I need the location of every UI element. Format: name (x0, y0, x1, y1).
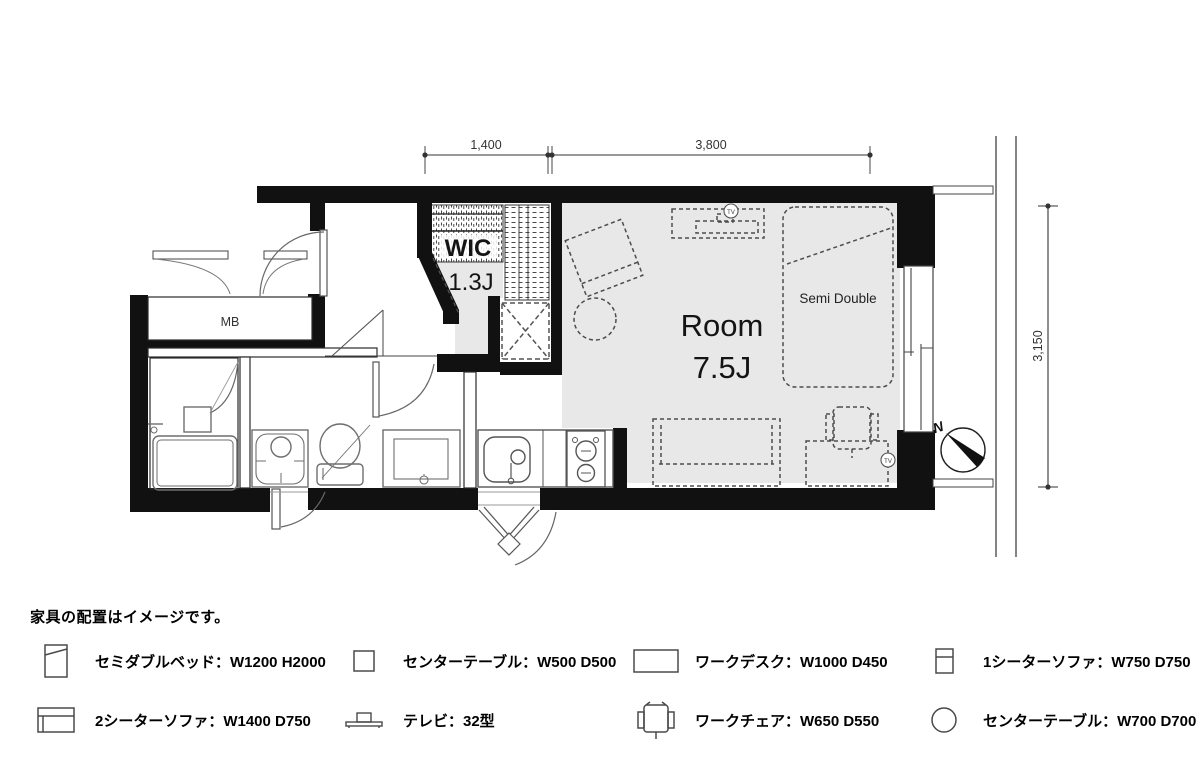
floor-plan-page: TV TV 1,400 3,800 3,150 N W (0, 0, 1200, 784)
entrance-door (260, 230, 327, 296)
wic-label: WIC (445, 235, 492, 262)
bathroom-outline (150, 358, 238, 489)
dim-entry-width: 1,400 (470, 138, 501, 152)
meter-box-doors (153, 251, 307, 294)
bathtub (148, 407, 237, 490)
work-desk-icon (630, 649, 682, 673)
legend-item-semi-double-bed: セミダブルベッド：W1200 H2000 (30, 644, 338, 678)
doors (210, 230, 556, 565)
two-seater-sofa-icon (30, 707, 82, 733)
bath-counter (184, 407, 211, 432)
room-size-label: 7.5J (693, 350, 752, 385)
legend-item-work-desk: ワークデスク：W1000 D450 (630, 649, 918, 673)
legend: セミダブルベッド：W1200 H2000 センターテーブル：W500 D500 … (30, 644, 1180, 740)
semi-double-bed-icon (30, 644, 82, 678)
bed-label: Semi Double (799, 291, 876, 306)
legend-item-work-chair: ワークチェア：W650 D550 (630, 700, 918, 740)
legend-item-center-table-small: センターテーブル：W500 D500 (338, 650, 630, 672)
pipe-space-box (502, 303, 549, 359)
tv-outlet-label: TV (727, 210, 735, 216)
room-label: Room (681, 308, 764, 343)
legend-label: センターテーブル：W700 D700 (983, 710, 1196, 731)
legend-item-tv: テレビ：32型 (338, 710, 630, 731)
bathroom-door (210, 362, 238, 413)
toilet (317, 424, 370, 485)
dim-room-depth: 3,150 (1031, 330, 1045, 361)
center-table-round-icon (918, 707, 970, 733)
tv-outlet-label: TV (884, 459, 892, 465)
legend-label: センターテーブル：W500 D500 (403, 651, 616, 672)
legend-item-center-table-round: センターテーブル：W700 D700 (918, 707, 1196, 733)
kitchen-counter (478, 430, 613, 487)
compass: N (931, 418, 985, 472)
legend-note: 家具の配置はイメージです。 (30, 606, 230, 627)
partitions (148, 297, 476, 489)
floor-plan-drawing: TV TV 1,400 3,800 3,150 N W (0, 0, 1200, 600)
legend-label: 2シーターソファ：W1400 D750 (95, 710, 311, 731)
legend-label: ワークチェア：W650 D550 (695, 710, 879, 731)
balcony-edge-lines (996, 136, 1016, 557)
washing-machine-pan (383, 430, 460, 487)
washroom-door (373, 362, 434, 417)
legend-item-two-seater-sofa: 2シーターソファ：W1400 D750 (30, 707, 338, 733)
dim-room-width: 3,800 (695, 138, 726, 152)
tv-icon (338, 711, 390, 729)
legend-label: テレビ：32型 (403, 710, 495, 731)
balcony-divider-bottom (933, 479, 993, 487)
balcony-divider-top (933, 186, 993, 194)
legend-item-one-seater-sofa: 1シーターソファ：W750 D750 (918, 648, 1196, 674)
one-seater-sofa-icon (918, 648, 970, 674)
center-table-small-icon (338, 650, 390, 672)
work-chair-icon (630, 700, 682, 740)
legend-label: セミダブルベッド：W1200 H2000 (95, 651, 326, 672)
legend-label: 1シーターソファ：W750 D750 (983, 651, 1191, 672)
wic-size-label: 1.3J (448, 269, 493, 296)
washbasin (252, 430, 308, 487)
window (904, 266, 933, 432)
legend-label: ワークデスク：W1000 D450 (695, 651, 888, 672)
meter-box-label: MB (221, 315, 240, 329)
wic-hanger-hatch (505, 205, 549, 300)
